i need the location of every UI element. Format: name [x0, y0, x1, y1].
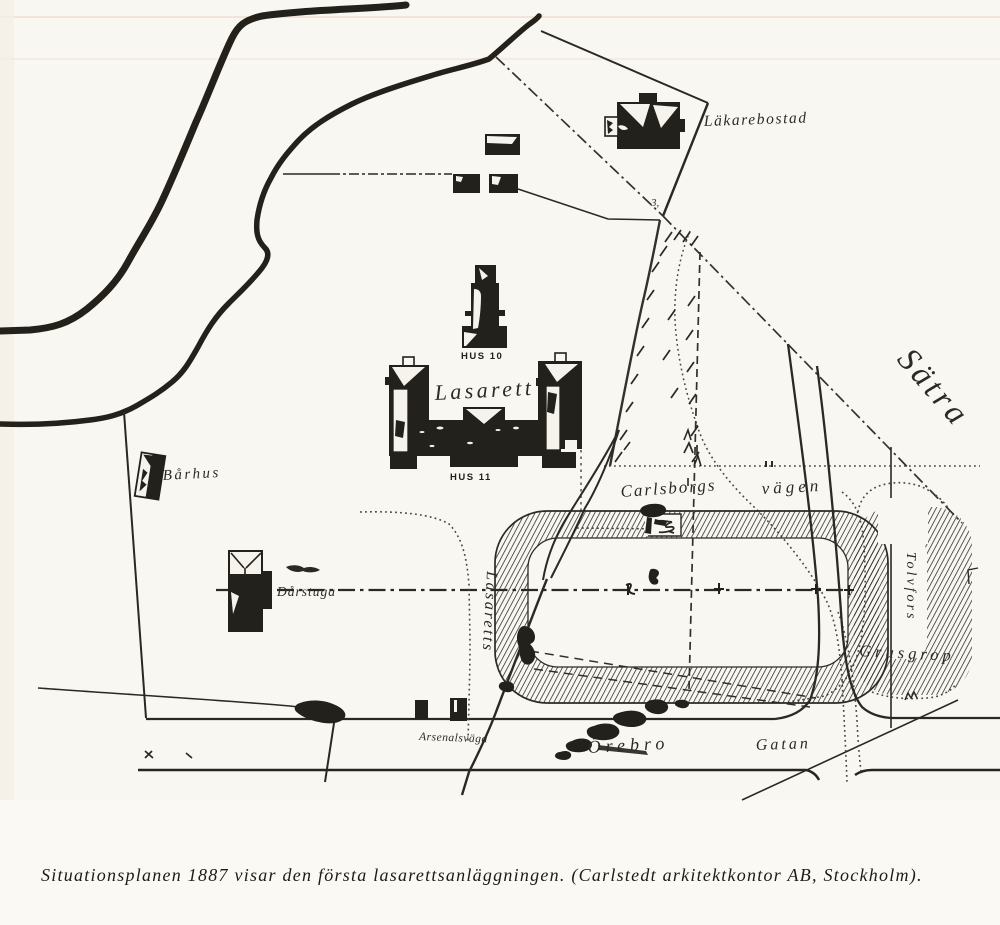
svg-text:Lasarett: Lasarett [433, 375, 535, 405]
svg-text:HUS 10: HUS 10 [461, 351, 503, 362]
svg-text:3,: 3, [650, 197, 660, 209]
svg-text:vägen: vägen [761, 476, 823, 498]
svg-text:Örebro: Örebro [587, 733, 670, 757]
svg-text:Tolvfors: Tolvfors [903, 552, 918, 621]
svg-text:Arsenalsväga: Arsenalsväga [418, 731, 488, 745]
svg-text:Bårhus: Bårhus [162, 465, 221, 484]
svg-text:HUS 11: HUS 11 [450, 472, 492, 483]
svg-text:Gatan: Gatan [756, 735, 812, 754]
svg-text:Situationsplanen 1887 visar de: Situationsplanen 1887 visar den första l… [41, 865, 923, 886]
svg-text:Dårstuga: Dårstuga [276, 584, 336, 599]
